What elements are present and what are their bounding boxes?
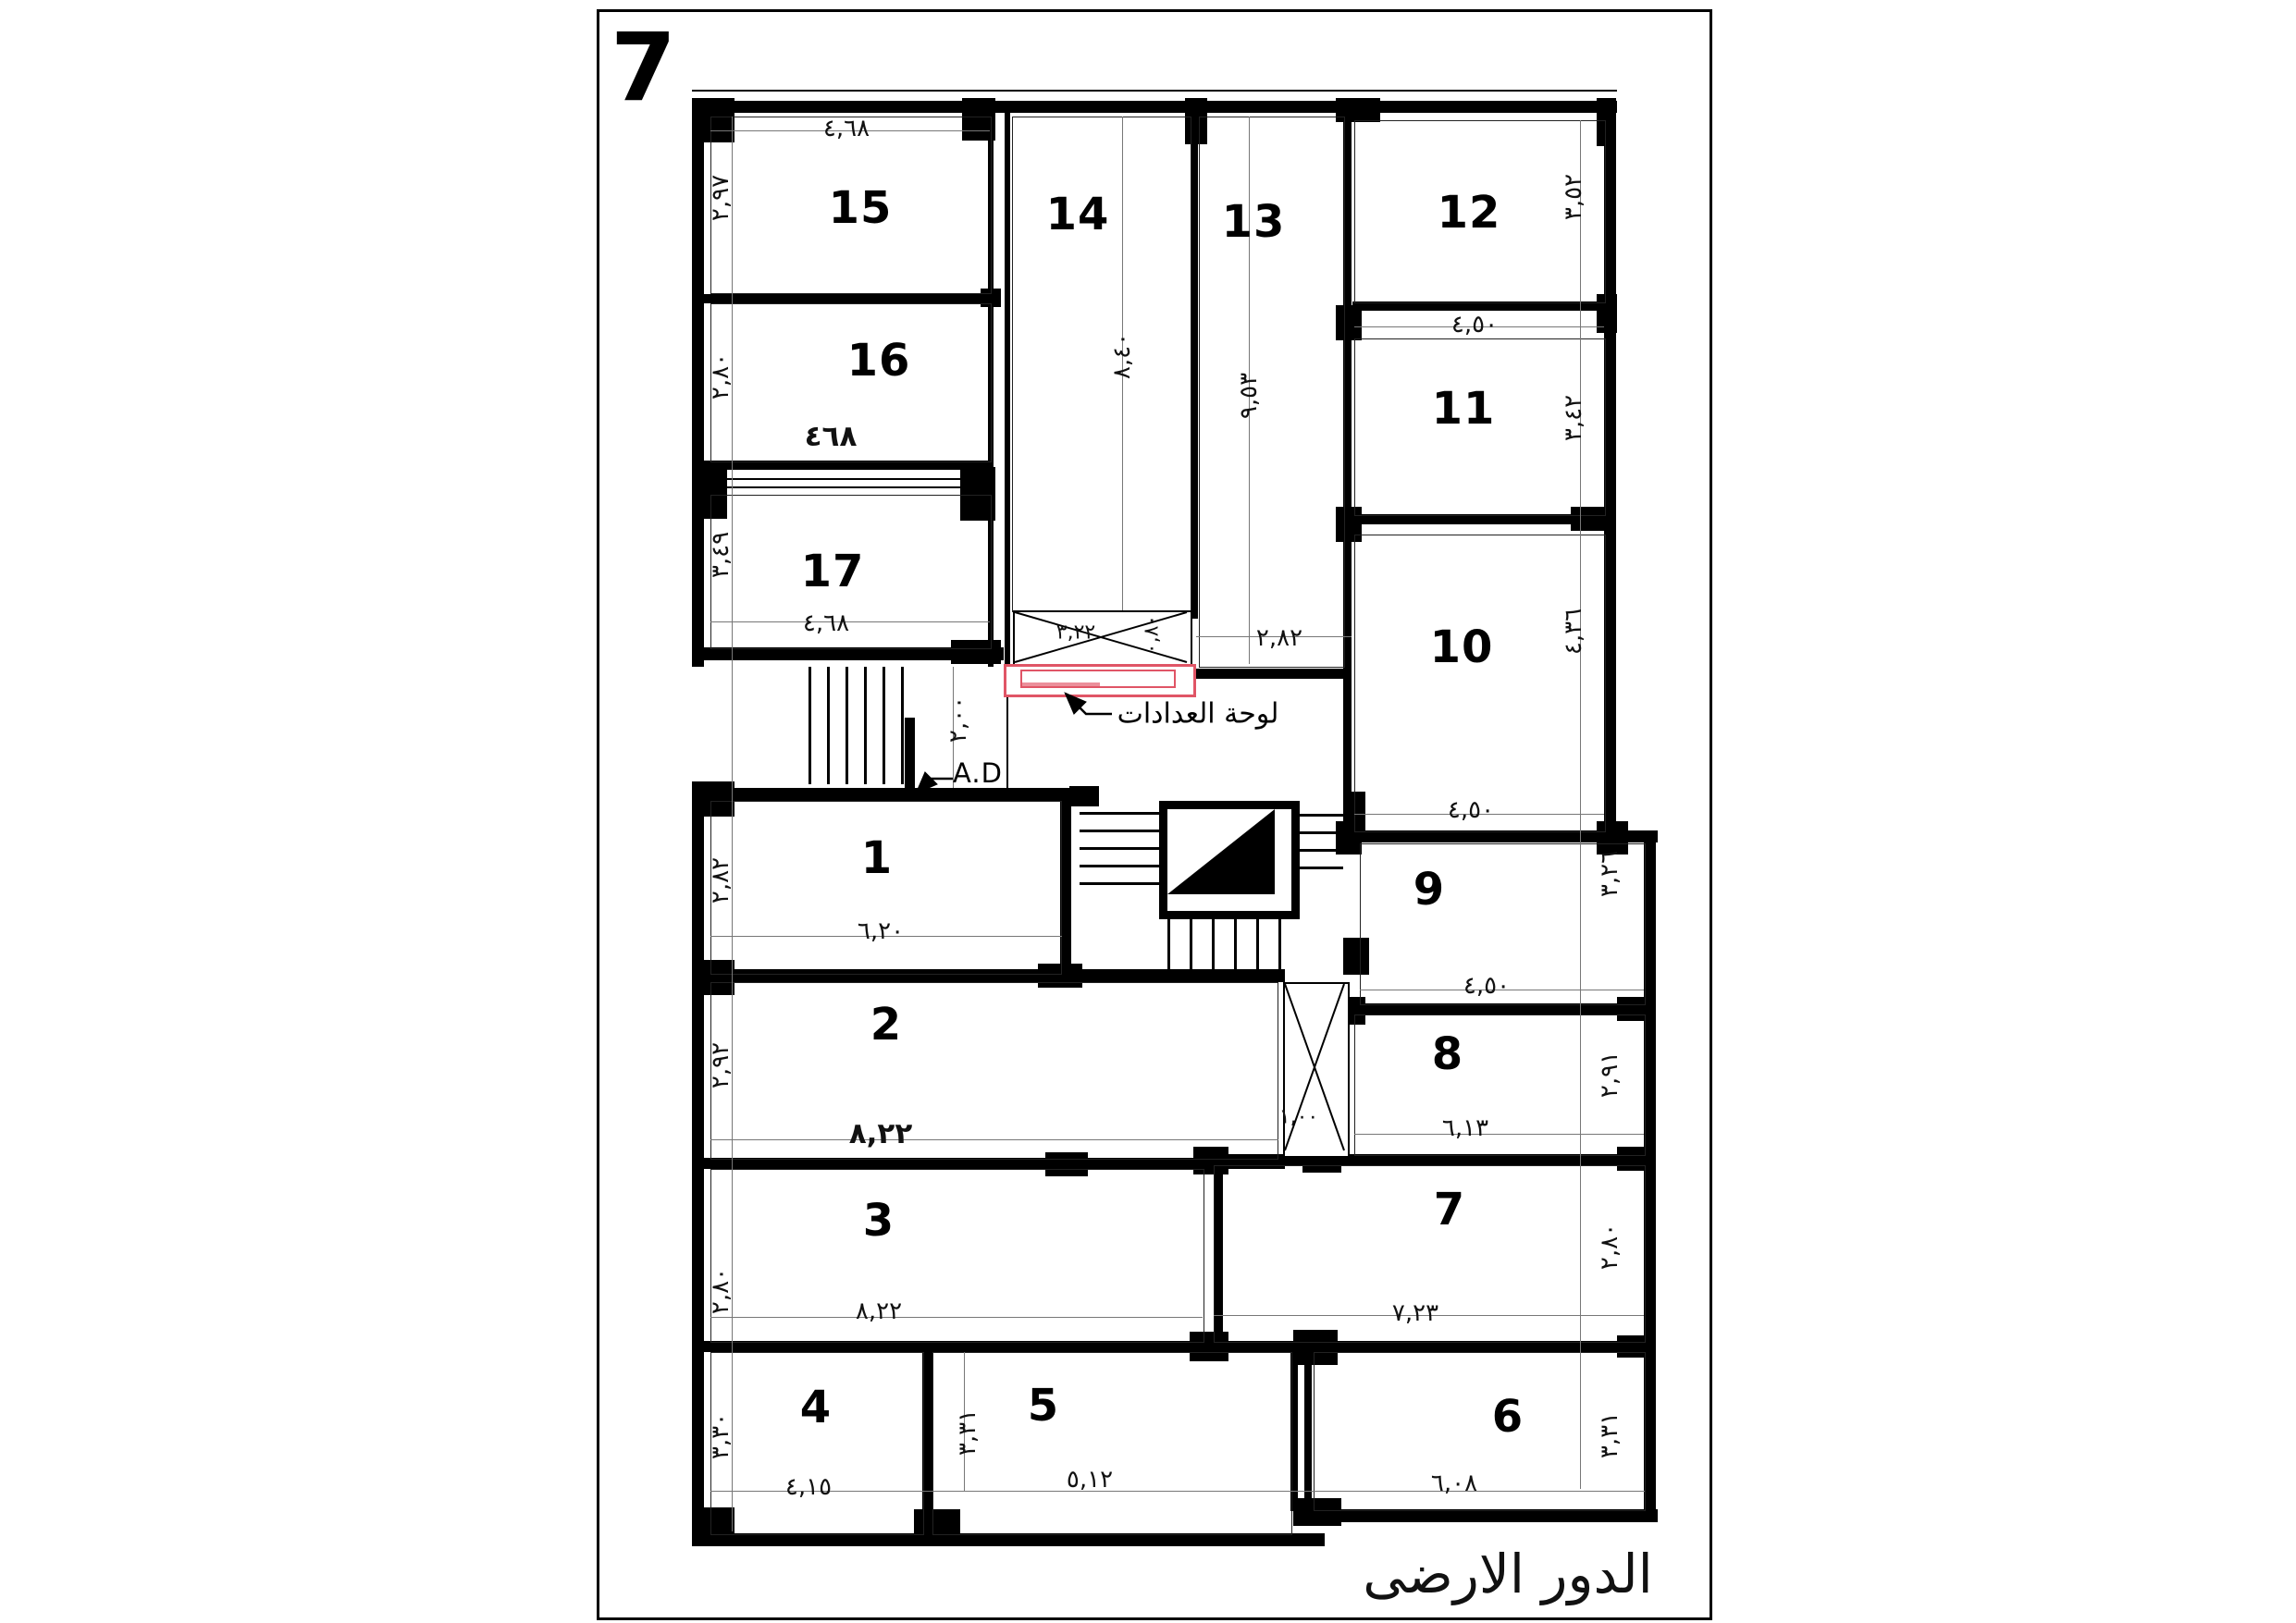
stair-tread (1080, 882, 1159, 885)
room-16-number: 16 (847, 335, 911, 387)
room-13-bottom-dim: ٢,٨٢ (1256, 624, 1302, 652)
room-16-side-dim: ٢,٨٠ (707, 353, 734, 400)
shaft-side-width-dim: ١,٠٠ (1279, 1106, 1318, 1129)
room-15-top-dim: ٤,٦٨ (823, 115, 870, 142)
room-2-area (710, 982, 1278, 1160)
stair-tread (809, 667, 811, 784)
room-5-number: 5 (1028, 1380, 1059, 1432)
stair-tread (1080, 865, 1159, 867)
room-10-number: 10 (1430, 621, 1494, 673)
dim-line (1580, 120, 1581, 1489)
duct-shaft-top (1013, 610, 1192, 670)
wall-5-6-b (1304, 1352, 1312, 1511)
wall-bottom-west (692, 1533, 1325, 1546)
dim-line (710, 1139, 1278, 1140)
room-3-bottom-dim: ٨,٢٢ (856, 1297, 902, 1325)
room-6-number: 6 (1492, 1391, 1524, 1443)
wall-14-13 (1191, 101, 1198, 619)
wall-stair-partition (905, 718, 915, 790)
wall-13-bottom (1196, 669, 1352, 679)
room-17-bottom-dim: ٤,٦٨ (803, 609, 849, 637)
room-12-number: 12 (1438, 187, 1501, 239)
wall-1-top (698, 788, 1081, 801)
stair-tread (864, 667, 867, 784)
stair-tread (1080, 812, 1159, 815)
shaft-top-width-dim: ٣,٢٢ (1056, 621, 1095, 645)
room-4-area (710, 1352, 924, 1535)
room-16-bottom-dim: ٤٦٨ (805, 420, 858, 453)
room-11-number: 11 (1432, 383, 1496, 435)
room-13-number: 13 (1222, 196, 1286, 248)
stair-tread (901, 667, 904, 784)
wall-top (692, 101, 1617, 113)
wall-15-16 (698, 294, 991, 303)
stair-tread (1278, 910, 1281, 973)
room-10-side-dim: ٤,٣٦ (1560, 609, 1587, 655)
room-8-side-dim: ٢,٩١ (1596, 1051, 1623, 1098)
room-5-side-dim: ٣,٣١ (954, 1409, 981, 1456)
shaft-top-depth-dim: ٠,٨٠ (1141, 615, 1164, 654)
room-12-side-dim: ٣,٥٢ (1560, 174, 1587, 220)
stair-tread (846, 667, 848, 784)
sheet-title: الدور الارضى (1363, 1543, 1652, 1605)
room-1-side-dim: ٢,٨٢ (707, 857, 734, 904)
stair-hall-dim: ٢,٠٠ (944, 696, 972, 743)
room-5-bottom-dim: ٥,١٢ (1067, 1466, 1113, 1494)
room-9-bottom-dim: ٤,٥٠ (1463, 972, 1510, 1000)
room-14-height-dim: ٨,٤٠ (1108, 333, 1136, 379)
wall-left-upper (692, 101, 704, 667)
stair-tread (1256, 910, 1259, 973)
dim-line (1354, 1134, 1644, 1135)
room-8-number: 8 (1432, 1028, 1463, 1080)
room-1-bottom-dim: ٦,٢٠ (858, 917, 904, 945)
dim-line (732, 117, 733, 1531)
room-15-number: 15 (829, 182, 893, 234)
meters-panel-bar (1020, 682, 1100, 686)
stair-tread (1080, 830, 1159, 832)
floor-plan-canvas: 7 الدور الارضى (0, 0, 2296, 1623)
wall-line (692, 90, 1617, 92)
wall-bottom-east (1310, 1509, 1658, 1522)
room-10-area (1354, 535, 1606, 832)
room-7-number: 7 (1434, 1184, 1465, 1236)
wall-left-block-east-b (1005, 101, 1010, 667)
stair-tread (1212, 910, 1215, 973)
room-1-number: 1 (861, 832, 893, 884)
room-5-area (932, 1352, 1292, 1535)
room-7-side-dim: ٢,٨٠ (1596, 1223, 1623, 1270)
dim-line (710, 1317, 1203, 1318)
wall-line (717, 478, 978, 480)
room-9-number: 9 (1413, 864, 1445, 916)
wall-line (717, 486, 978, 488)
room-4-side-dim: ٣,٣٠ (707, 1413, 734, 1459)
room-4-number: 4 (800, 1382, 832, 1433)
column (1069, 786, 1099, 806)
room-3-side-dim: ٢,٨٠ (707, 1268, 734, 1314)
air-duct-label: A.D (953, 757, 1003, 789)
room-2-number: 2 (870, 999, 902, 1051)
room-9-side-dim: ٣,٢٦ (1596, 851, 1623, 897)
sheet-number: 7 (611, 13, 676, 123)
meters-panel-label: لوحة العدادات (1117, 698, 1279, 731)
stair-tread (1190, 910, 1192, 973)
stair-tread (827, 667, 830, 784)
room-11-top-dim: ٤,٥٠ (1451, 311, 1498, 338)
dim-line (710, 621, 990, 622)
room-8-bottom-dim: ٦,١٣ (1442, 1114, 1488, 1142)
stair-tread (1234, 910, 1237, 973)
stair-tread (1080, 847, 1159, 850)
room-13-height-dim: ٩,٥٣ (1235, 373, 1263, 419)
room-3-number: 3 (863, 1195, 895, 1247)
dim-line (710, 1491, 1645, 1492)
room-4-bottom-dim: ٤,١٥ (785, 1473, 832, 1501)
room-2-bottom-dim: ٨,٢٢ (849, 1117, 913, 1150)
room-7-bottom-dim: ٧,٢٣ (1392, 1299, 1438, 1327)
room-1-area (710, 801, 1062, 975)
duct-shaft-side (1283, 982, 1350, 1158)
room-11-side-dim: ٣,٤٢ (1560, 395, 1587, 441)
elevator-core (1159, 801, 1300, 919)
room-17-number: 17 (801, 546, 865, 597)
room-15-side-dim: ٢,٩٧ (707, 175, 734, 221)
room-6-side-dim: ٣,٣١ (1596, 1412, 1623, 1458)
room-2-side-dim: ٢,٩٢ (707, 1042, 734, 1088)
room-6-bottom-dim: ٦,٠٨ (1431, 1469, 1477, 1497)
room-17-side-dim: ٣,٤٩ (707, 532, 734, 578)
room-10-bottom-dim: ٤,٥٠ (1448, 796, 1494, 824)
stair-tread (1167, 910, 1170, 973)
room-14-number: 14 (1046, 189, 1110, 240)
stair-tread (883, 667, 885, 784)
